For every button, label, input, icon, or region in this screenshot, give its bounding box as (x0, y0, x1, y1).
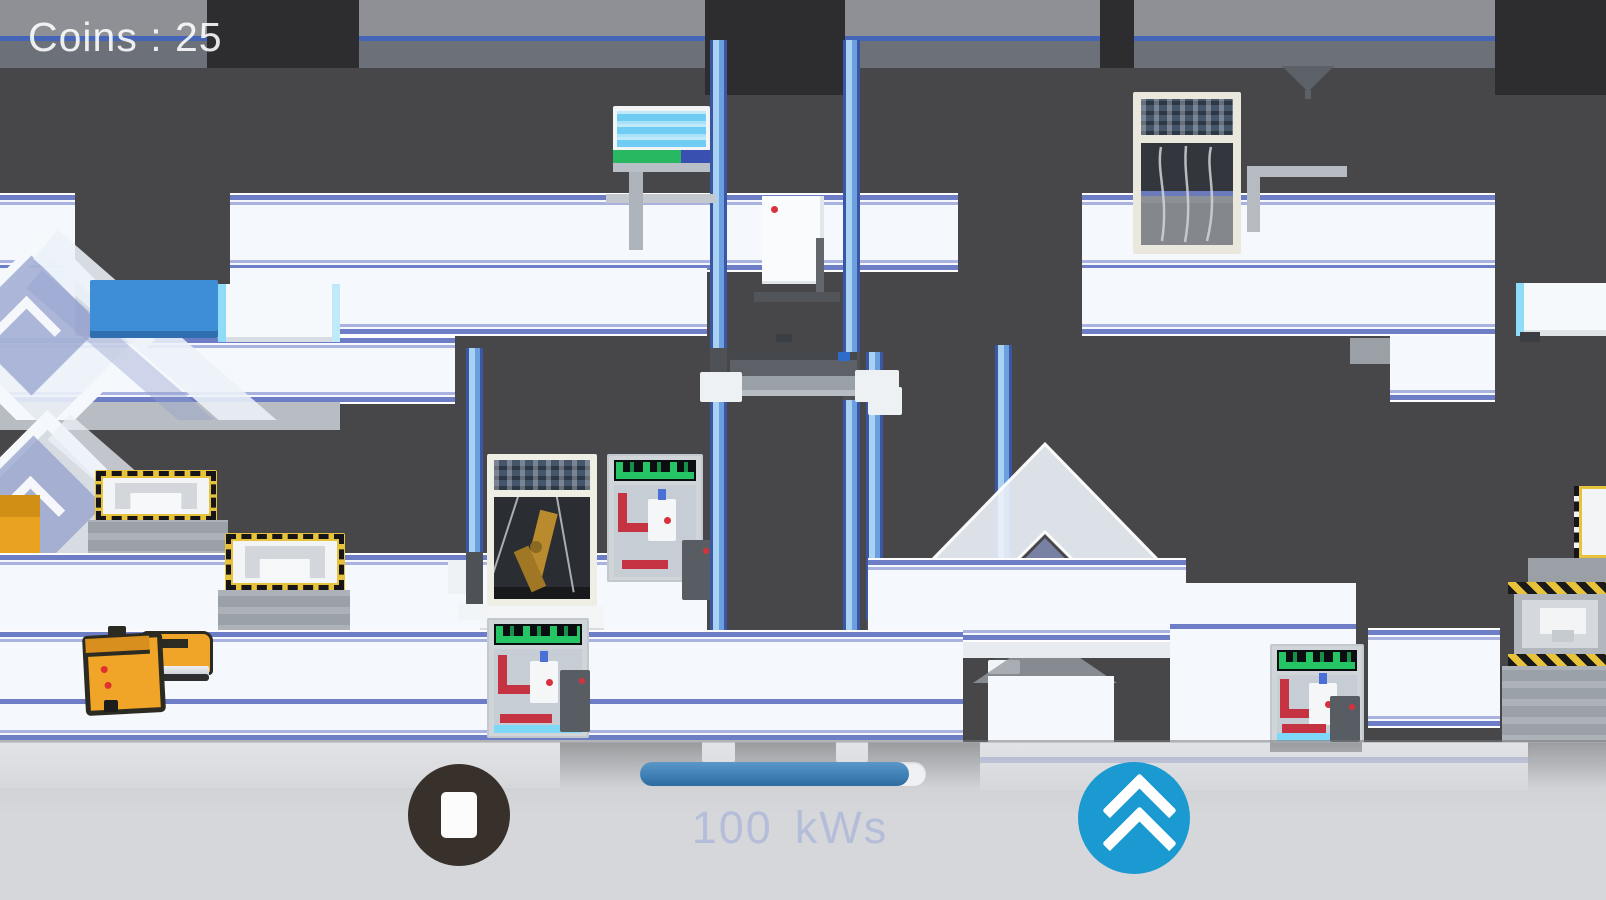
power-unit: kWs (795, 802, 888, 853)
platform (1390, 336, 1495, 402)
game-screen: 100kWs Coins : 25 (0, 0, 1606, 900)
box-bracket (754, 292, 840, 302)
coins-counter: Coins : 25 (28, 14, 223, 61)
power-value-label: 100kWs (640, 802, 940, 854)
worker-robot (82, 632, 166, 716)
robot-antenna (108, 626, 126, 636)
machine-hopper (560, 670, 590, 732)
boost-button[interactable] (1078, 762, 1190, 874)
robot-foot (104, 700, 118, 712)
elevator-indicator (838, 352, 850, 361)
hazard-press-body (1514, 594, 1606, 654)
floor-stripe (1170, 622, 1356, 632)
platform-ledge (1350, 338, 1390, 364)
stop-button[interactable] (408, 764, 510, 866)
machine-hopper (1330, 696, 1360, 742)
debris-piece (776, 334, 792, 342)
pillar-base (458, 604, 488, 620)
hazard-press-top (1528, 558, 1606, 584)
debris-piece (1520, 332, 1540, 342)
stop-square-icon (441, 792, 477, 838)
press-machine-base (218, 590, 350, 632)
funnel-tip (1305, 90, 1311, 99)
press-machine (225, 533, 345, 591)
display-screen-machine (613, 106, 710, 172)
white-crate (218, 284, 340, 342)
hazard-press-base (1502, 666, 1606, 742)
solar-panel-machine (1133, 92, 1241, 254)
ceiling-platform (1134, 0, 1495, 68)
ceiling-platform (845, 0, 1100, 68)
hanging-rail-post (1247, 166, 1260, 232)
ceiling-gap (1495, 0, 1606, 95)
machine-leg (629, 172, 643, 250)
platform (1368, 628, 1500, 728)
pillar-clamp (448, 560, 466, 594)
pillar-segment (466, 552, 483, 604)
hazard-stripe (1508, 582, 1606, 594)
power-value: 100 (692, 802, 773, 853)
floating-platform (1516, 283, 1606, 336)
power-progress-fill (640, 762, 909, 786)
press-machine-partial (1574, 486, 1606, 558)
hazard-stripe (1508, 654, 1606, 666)
arrow-pedestal (988, 676, 1114, 742)
pillar-clamp (700, 372, 742, 402)
paper-box (762, 196, 824, 284)
blue-crate (90, 280, 218, 338)
power-progress-track (640, 762, 926, 786)
ceiling-platform (359, 0, 705, 68)
machine-table (606, 194, 716, 203)
funnel-spout (1282, 66, 1334, 92)
platform (1082, 268, 1495, 336)
press-machine (95, 470, 217, 522)
pillar-clamp (868, 387, 902, 415)
robot-arm-cabinet (487, 454, 597, 608)
hanging-rail (1247, 166, 1347, 177)
box-bracket (816, 238, 824, 298)
